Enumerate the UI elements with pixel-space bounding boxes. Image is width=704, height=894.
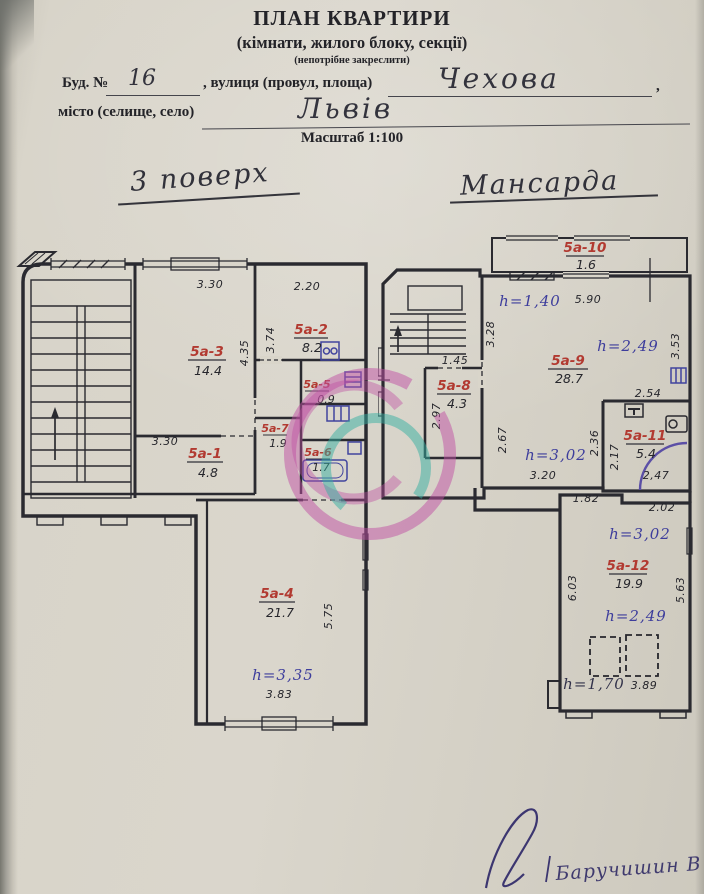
toilet-icon [666,416,687,432]
boiler-icon [345,372,361,387]
svg-text:1.9: 1.9 [269,437,287,450]
dimension-label: 4.35 [238,340,251,367]
svg-text:5а-11: 5а-11 [624,428,667,444]
building-underline [106,95,200,96]
dimension-label: 3.74 [264,327,277,354]
svg-text:8.2: 8.2 [302,340,322,355]
dimension-label: 2.54 [635,387,662,400]
city-label: місто (селище, село) [58,104,194,121]
street-underline [388,96,652,97]
dimension-label: 5.75 [322,603,335,630]
svg-text:5а-9: 5а-9 [551,353,585,369]
building-number-value: 16 [128,66,156,91]
room-label-5a5: 5а-50.9 [303,378,334,406]
room-label-5a12: 5а-1219.9 [607,558,650,591]
street-label: , вулиця (провул, площа) [203,75,372,92]
dimension-label: 3.20 [530,469,557,482]
svg-text:0.9: 0.9 [317,393,335,406]
signature-name: Баручишин В [554,853,702,885]
dimension-label: 2.20 [294,280,321,293]
floor-plan-mansard: 5а-101.6 5а-928.7 5а-84.3 5а-115.4 5а-12… [378,230,704,724]
dimension-label: 3.83 [266,688,293,701]
dimension-label: 3.28 [484,321,497,348]
room-label-5a9: 5а-928.7 [548,353,588,386]
plan-title-left: 3 поверх [129,157,270,198]
height-label: h=3,02 [525,446,587,464]
dimension-label: 2.97 [430,403,443,430]
signature: Баручишин В [440,790,704,894]
svg-text:5а-2: 5а-2 [294,322,328,338]
dimension-label: 1.82 [573,492,600,505]
svg-text:4.3: 4.3 [447,396,467,411]
svg-text:28.7: 28.7 [555,371,583,386]
building-label: Буд. № [62,75,108,92]
windows-top [51,258,247,270]
dimension-label: 3.30 [197,278,224,291]
dimension-label: 2.17 [608,444,621,471]
dimension-label: 3.53 [669,333,682,360]
room-labels: 5а-314.4 5а-28.2 5а-50.9 5а-71.9 5а-61.7… [187,322,335,620]
page-title: ПЛАН КВАРТИРИ [0,6,704,31]
dimension-label: 2,47 [643,469,670,482]
height-label: h=2,49 [605,607,667,625]
sink-icon [327,406,349,421]
tank-icon [625,404,643,417]
fixtures [590,368,687,676]
dimension-label: 6.03 [566,575,579,602]
staircase [31,280,131,498]
height-label: h=2,49 [597,337,659,355]
height-label: h=3,35 [252,666,314,684]
dimension-label: 2.02 [649,501,676,514]
staircase [390,286,466,354]
room-label-5a4: 5а-421.7 [259,586,295,620]
dimension-label: 5.63 [674,577,687,604]
balcony-door-icon [671,368,686,383]
scale-label: Масштаб 1:100 [0,130,704,147]
svg-text:5а-7: 5а-7 [261,422,289,435]
dimension-label: 3.30 [152,435,179,448]
height-label: h=1,70 [563,675,625,693]
svg-text:5.4: 5.4 [636,446,656,461]
room-label-5a11: 5а-115.4 [624,428,667,461]
svg-text:21.7: 21.7 [266,605,294,620]
svg-text:1.6: 1.6 [576,257,596,272]
svg-text:5а-5: 5а-5 [303,378,331,391]
svg-text:5а-6: 5а-6 [304,446,332,459]
svg-text:5а-8: 5а-8 [437,378,471,394]
street-value: Чехова [438,62,560,95]
city-underline [202,123,690,129]
svg-text:19.9: 19.9 [615,576,643,591]
page-subtitle: (кімнати, жилого блоку, секції) [0,33,704,53]
stove-icon [321,342,339,360]
city-value: Львів [298,92,393,125]
dimension-label: 5.90 [575,293,602,306]
room-label-5a1: 5а-14.8 [187,446,223,480]
svg-text:5а-4: 5а-4 [260,586,294,602]
height-label: h=3,02 [609,525,671,543]
tank-icon [348,442,361,454]
scanned-floor-plan-page: ПЛАН КВАРТИРИ (кімнати, жилого блоку, се… [0,0,704,894]
skylight-dashed [590,635,658,676]
svg-text:5а-1: 5а-1 [188,446,222,462]
window-bottom [225,716,333,731]
svg-text:14.4: 14.4 [194,363,222,378]
svg-text:1.7: 1.7 [312,461,330,474]
floor-plan-3rd-floor: 5а-314.4 5а-28.2 5а-50.9 5а-71.9 5а-61.7… [15,248,370,733]
comma: , [656,78,660,95]
svg-text:5а-12: 5а-12 [607,558,650,574]
dimension-label: 1.45 [442,354,469,367]
room-label-5a3: 5а-314.4 [188,344,226,378]
dimension-label: 2.67 [496,427,509,454]
svg-text:5а-10: 5а-10 [564,240,607,256]
svg-text:5а-3: 5а-3 [190,344,224,360]
page-note: (непотрібне закреслити) [0,55,704,66]
signature-flourish [486,809,537,888]
dimension-label: 2.36 [588,430,601,457]
room-label-5a10: 5а-101.6 [564,240,607,272]
svg-text:4.8: 4.8 [198,465,218,480]
height-label: h=1,40 [499,292,561,310]
dimension-label: 3.89 [631,679,658,692]
room-label-5a7: 5а-71.9 [261,422,289,450]
